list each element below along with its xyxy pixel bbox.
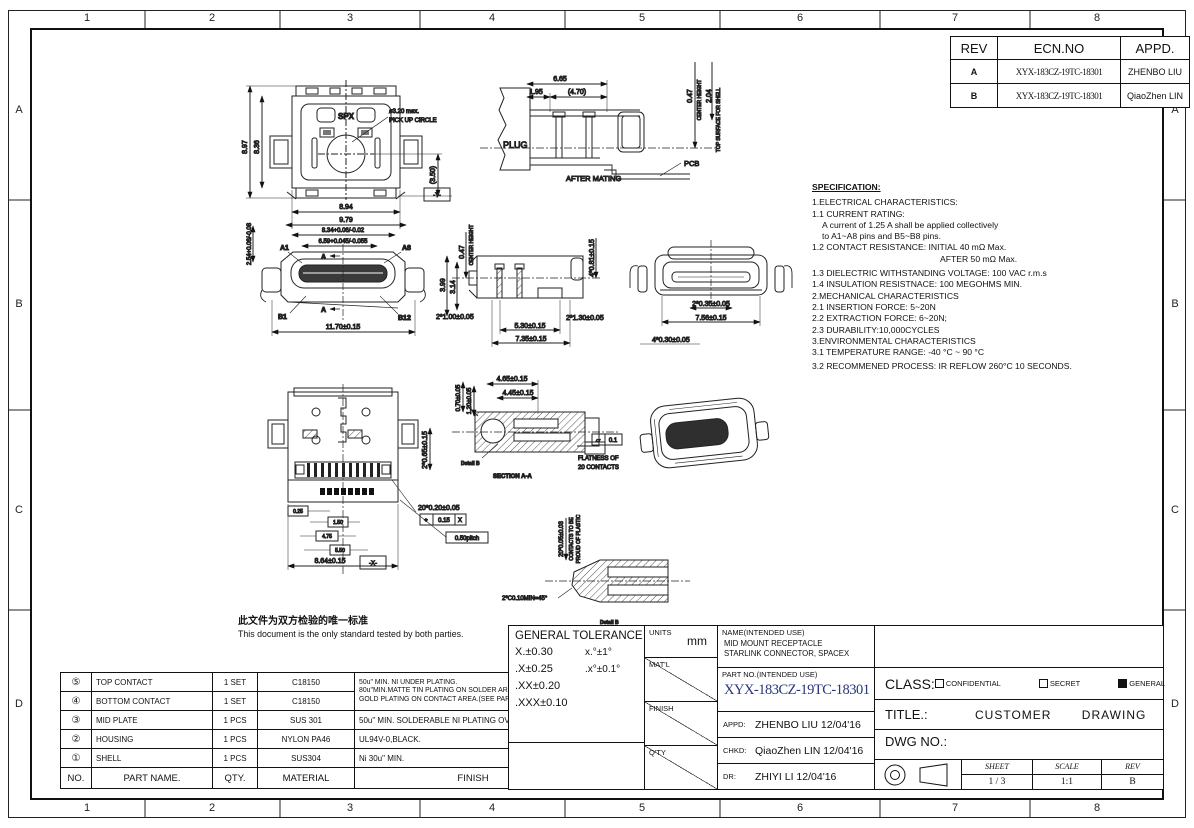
drawing-sheet: 1 2 3 4 5 6 7 8 1 2 3 4 5 6 7 8 A B C D … [0,0,1194,828]
svg-text:(4.70): (4.70) [568,89,586,96]
svg-text:4*0.81±0.15: 4*0.81±0.15 [589,239,596,277]
svg-text:8.94: 8.94 [339,204,353,211]
note-chinese: 此文件为双方检验的唯一标准 [238,612,463,627]
name-cell: NAME(INTENDED USE) MID MOUNT RECEPTACLE … [717,625,875,668]
view-bottom: 2*0.65±0.15 20*0.20±0.05 ⌖ 0.15 X 0.50pi… [268,384,488,575]
svg-text:2*1.00±0.05: 2*1.00±0.05 [436,314,474,321]
svg-text:3.99: 3.99 [440,278,447,292]
section-caption: SECTION A-A [493,474,532,480]
svg-text:0.47: 0.47 [459,245,466,259]
sheet-value: 1 / 3 [962,775,1032,790]
dwg-no-cell: DWG NO.: [874,729,1164,760]
general-tolerance-title: GENERAL TOLERANCE [509,626,644,644]
note-english: This document is the only standard teste… [238,629,463,639]
rev-value: B [1102,775,1163,790]
pin-a1-label: A1 [280,245,289,252]
svg-text:0.70±0.05: 0.70±0.05 [456,384,462,411]
svg-text:(3.50): (3.50) [430,166,437,184]
svg-text:20*0.20±0.05: 20*0.20±0.05 [418,505,460,512]
projection-cell [874,759,962,790]
pcb-label: PCB [684,159,699,168]
svg-text:2*0.35±0.05: 2*0.35±0.05 [692,301,730,308]
svg-text:0.50pitch: 0.50pitch [455,536,479,542]
svg-text:0.1: 0.1 [609,438,618,444]
pin-b1-label: B1 [278,314,287,321]
part-no-cell: PART NO.(INTENDED USE) XYX-183CZ-19TC-18… [717,667,875,712]
view-after-mating: 6.65 1.95 (4.70) 0.47 CENTER HEIGHT 2.04… [480,62,722,183]
pin-b12-label: B12 [398,315,411,322]
appd-signature: ZHENBO LIU 12/04'16 [755,719,861,731]
third-angle-projection-icon [875,760,961,789]
svg-text:X: X [458,518,462,524]
svg-text:PROUD OF PLASTIC: PROUD OF PLASTIC [576,514,582,563]
scale-cell: SCALE 1:1 [1032,759,1102,790]
svg-text:2*C0.10MIN=45°: 2*C0.10MIN=45° [502,596,548,602]
view-detail-b: 20*0.05±0.03 CONTACTS TO BE PROUD OF PLA… [502,514,690,626]
pickup-callout: ø3.20 max. [389,109,419,115]
view-front: 2.54+0.06/-0.08 8.34+0.06/-0.02 6.59+0.0… [247,222,425,336]
svg-text:7.35±0.15: 7.35±0.15 [515,336,546,343]
finish-cell: FINISH [644,701,718,746]
svg-text:0.25: 0.25 [293,509,303,515]
class-option-secret: SECRET [1039,679,1080,688]
svg-text:7.56±0.15: 7.56±0.15 [695,315,726,322]
plug-label: PLUG [503,140,528,150]
svg-text:2*1.30±0.05: 2*1.30±0.05 [566,315,604,322]
svg-text:TOP SURFACE FOR SHELL: TOP SURFACE FOR SHELL [716,88,722,152]
units-value: mm [687,626,717,648]
svg-text:20*0.05±0.03: 20*0.05±0.03 [559,521,565,557]
svg-text:6.59+0.045/-0.055: 6.59+0.045/-0.055 [319,239,369,245]
svg-text:3.14: 3.14 [450,280,457,294]
flatness-symbol: ▱ [596,438,601,444]
svg-text:1.95: 1.95 [529,89,543,96]
svg-text:CENTER HEIGHT: CENTER HEIGHT [697,80,703,121]
class-cell: CLASS: CONFIDENTIAL SECRET GENERAL [874,667,1164,700]
sheet-cell: SHEET 1 / 3 [961,759,1033,790]
spx-marking: SPX [338,112,355,121]
class-option-confidential: CONFIDENTIAL [935,679,1001,688]
chkd-signature: QiaoZhen LIN 12/04'16 [755,745,863,757]
svg-text:8.36: 8.36 [254,140,261,154]
tolerance-spare-box [508,742,645,790]
chkd-cell: CHKD:QiaoZhen LIN 12/04'16 [717,737,875,764]
svg-text:6.65: 6.65 [553,76,567,83]
svg-text:4*0.30±0.05: 4*0.30±0.05 [652,337,690,344]
svg-text:1.20±0.05: 1.20±0.05 [467,387,473,414]
svg-text:8.64±0.15: 8.64±0.15 [314,558,345,565]
view-rear: 2*0.35±0.05 7.56±0.15 4*0.30±0.05 [630,240,792,344]
specification-block: SPECIFICATION: 1.ELECTRICAL CHARACTERIST… [812,182,1182,373]
svg-text:4.65±0.15: 4.65±0.15 [496,376,527,383]
svg-text:FLATNESS OF: FLATNESS OF [578,456,619,462]
revision-table: REV ECN.NO APPD. A XYX-183CZ-19TC-18301 … [950,36,1190,108]
svg-text:2*0.65±0.15: 2*0.65±0.15 [422,431,429,469]
dr-cell: DR:ZHIYI LI 12/04'16 [717,763,875,790]
svg-text:20 CONTACTS: 20 CONTACTS [578,465,619,471]
title-cell: TITLE.:CUSTOMER DRAWING [874,699,1164,730]
svg-text:2.04: 2.04 [706,89,713,103]
revision-row: B XYX-183CZ-19TC-18301 QiaoZhen LIN [951,84,1190,108]
svg-text:0.47: 0.47 [687,89,694,103]
rev-header: REV [951,37,998,60]
datum-y-label: -Y- [433,193,440,199]
detail-b-callout: Detail B [461,461,480,467]
svg-text:8.34+0.06/-0.02: 8.34+0.06/-0.02 [322,228,365,234]
drawing-title: CUSTOMER DRAWING [975,708,1146,722]
pin-a8-label: A8 [402,245,411,252]
checkbox-confidential [935,679,944,688]
appd-header: APPD. [1121,37,1190,60]
svg-text:11.70±0.15: 11.70±0.15 [326,324,361,331]
titleblock-spare-box [874,625,1164,668]
view-side: 0.47 CENTER HEIGHT 3.99 3.14 2*1.00±0.05… [436,225,604,347]
scale-value: 1:1 [1033,775,1101,790]
datum-x-label: -X- [369,561,377,567]
specification-title: SPECIFICATION: [812,182,1182,193]
svg-text:1.50: 1.50 [333,520,343,526]
svg-text:5.50: 5.50 [335,548,345,554]
units-cell: UNITS mm [644,625,718,658]
svg-text:CONTACTS TO BE: CONTACTS TO BE [569,517,575,561]
svg-text:4.45±0.15: 4.45±0.15 [502,390,533,397]
svg-text:9.79: 9.79 [339,217,353,224]
svg-text:CENTER HEIGHT: CENTER HEIGHT [469,225,475,266]
class-option-general: GENERAL [1118,679,1165,688]
svg-text:PICK UP CIRCLE: PICK UP CIRCLE [389,118,437,124]
svg-text:4.75: 4.75 [322,534,332,540]
checkbox-general [1118,679,1127,688]
ecn-header: ECN.NO [998,37,1121,60]
view-top-plan: 8.97 8.36 8.94 9.79 (3.50) -Y- ø3.20 max… [242,80,452,229]
section-arrow-label: A [321,307,326,314]
part-number: XYX-183CZ-19TC-18301 [718,679,874,699]
svg-text:8.97: 8.97 [242,140,249,154]
section-arrow-label: A [321,254,326,261]
revision-row: A XYX-183CZ-19TC-18301 ZHENBO LIU [951,60,1190,84]
material-cell: MAT'L [644,657,718,702]
general-tolerance-box: GENERAL TOLERANCE X.±0.30 .X±0.25 .XX±0.… [508,625,645,743]
dr-signature: ZHIYI LI 12/04'16 [755,771,836,783]
qty-cell: Q'TY [644,745,718,790]
rev-cell: REV B [1101,759,1164,790]
view-isometric [637,395,771,470]
svg-text:2.54+0.06/-0.08: 2.54+0.06/-0.08 [247,222,253,265]
agreement-note: 此文件为双方检验的唯一标准 This document is the only … [238,612,463,639]
after-mating-caption: AFTER MATING [566,174,621,183]
svg-text:0.15: 0.15 [438,518,450,524]
svg-text:5.30±0.15: 5.30±0.15 [514,323,545,330]
checkbox-secret [1039,679,1048,688]
view-section-aa: 0.70±0.05 1.20±0.05 4.65±0.15 4.45±0.15 … [452,376,622,480]
appd-cell: APPD:ZHENBO LIU 12/04'16 [717,711,875,738]
